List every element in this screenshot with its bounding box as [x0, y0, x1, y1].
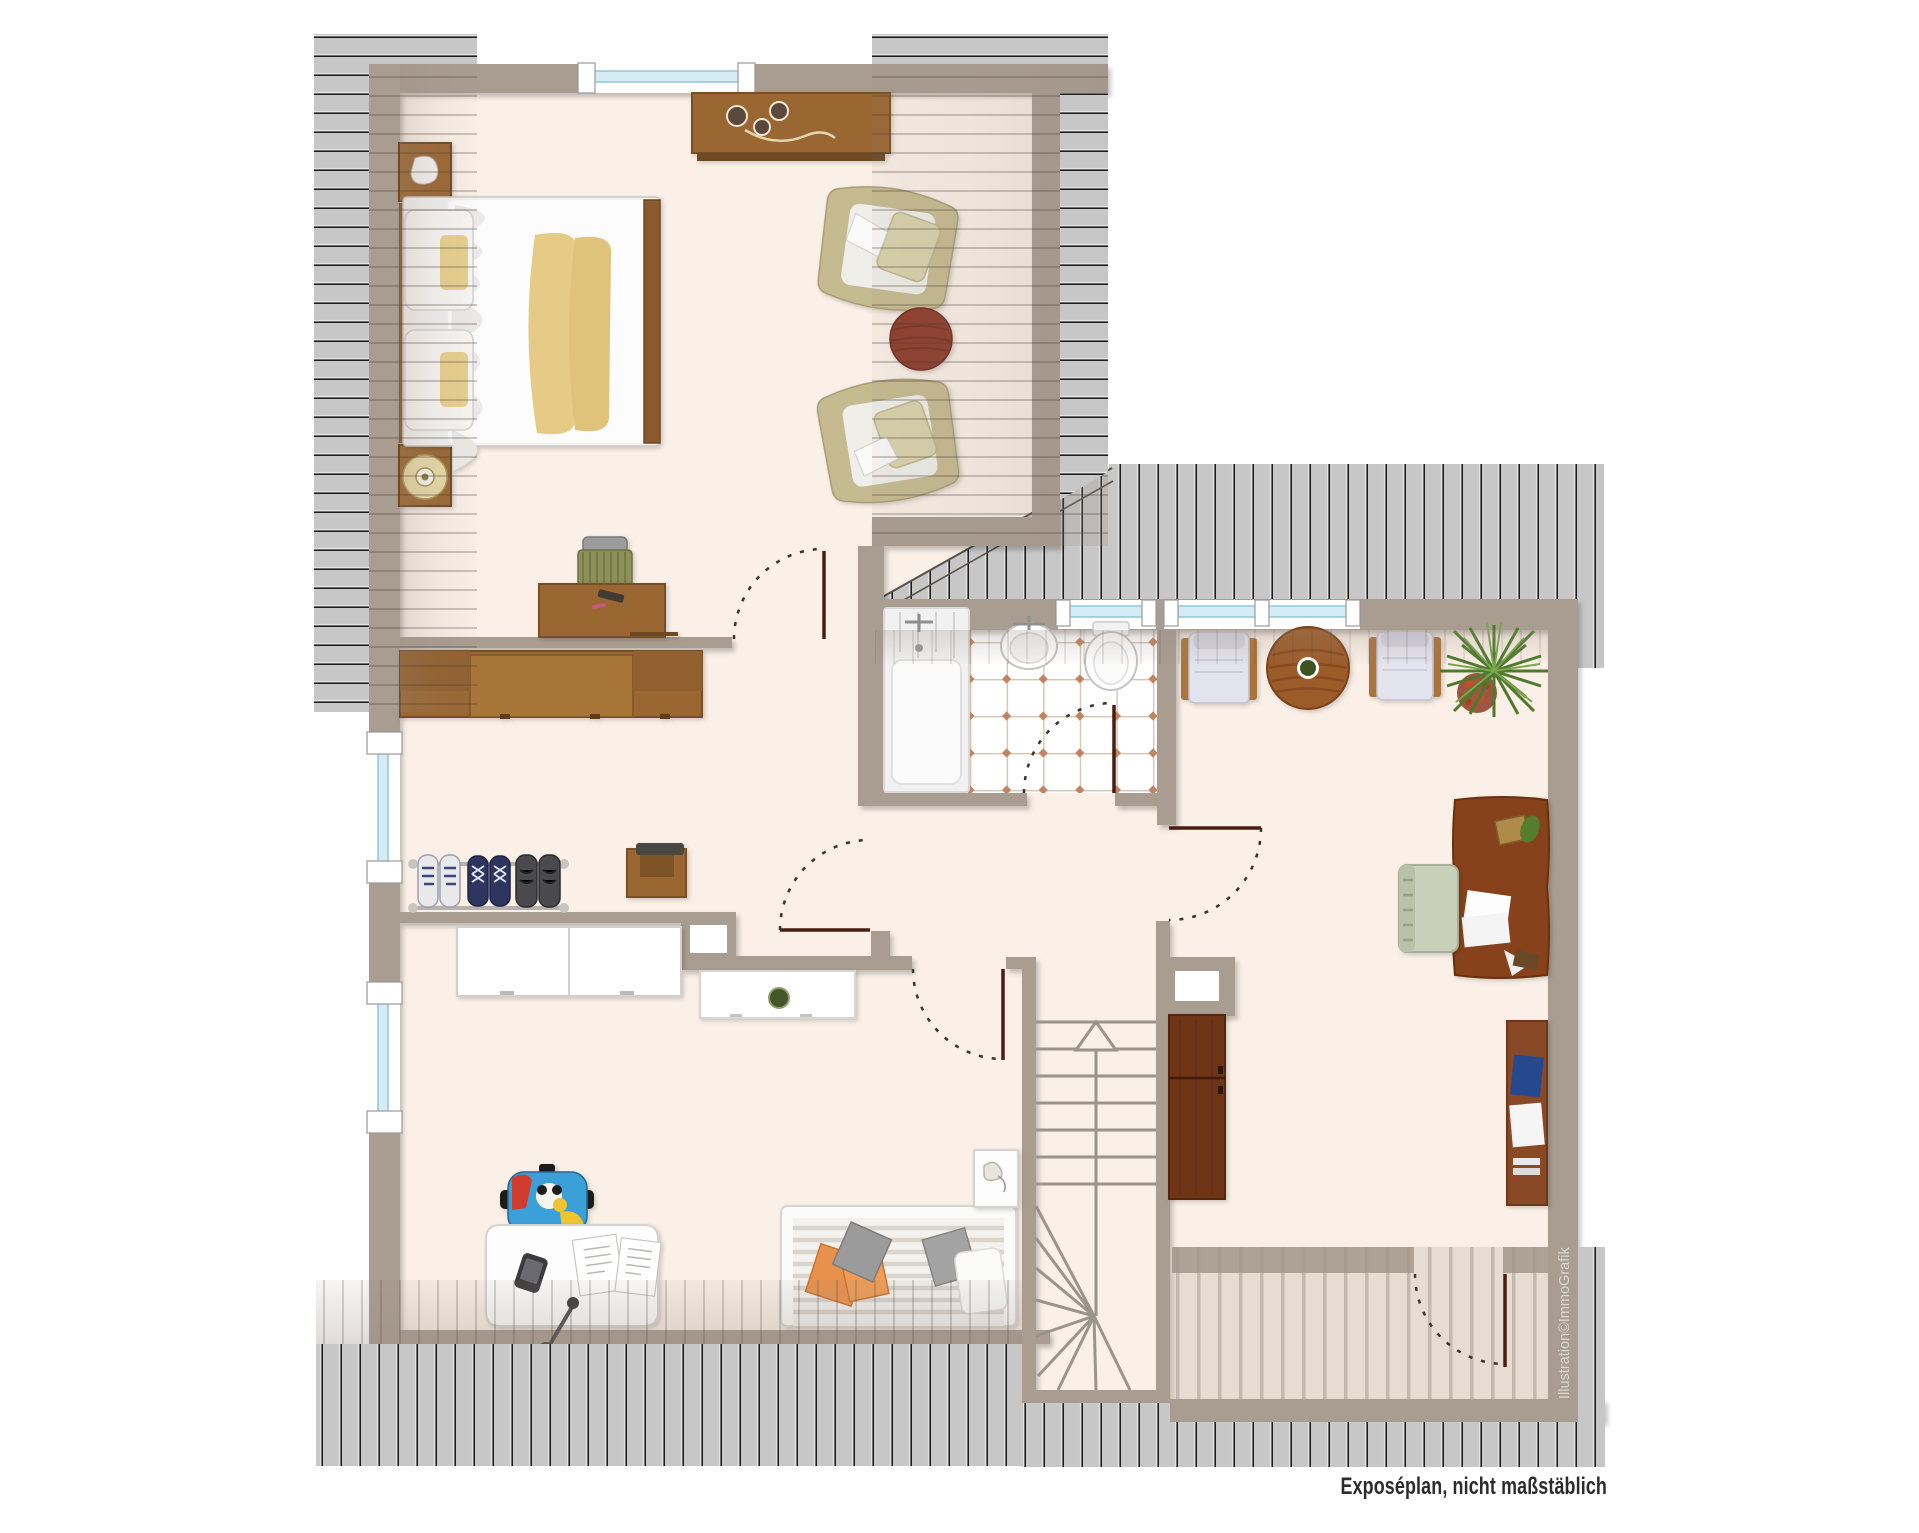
svg-text:Illustration©ImmoGrafik: Illustration©ImmoGrafik	[1557, 1247, 1573, 1399]
svg-text:Exposéplan, nicht maßstäblich: Exposéplan, nicht maßstäblich	[1341, 1472, 1607, 1499]
